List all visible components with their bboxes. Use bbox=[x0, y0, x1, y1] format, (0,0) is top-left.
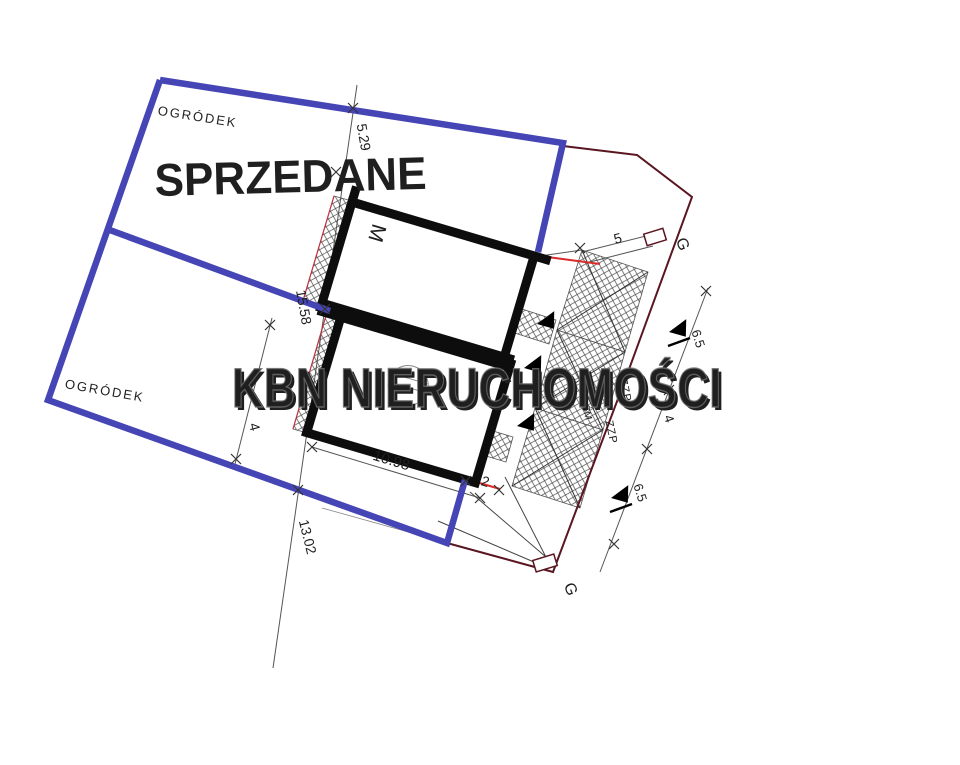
watermark: KBN NIERUCHOMOŚCI KBN NIERUCHOMOŚCI bbox=[232, 356, 725, 422]
site-plan-canvas: M OGRÓDEK SPRZEDANE OGRÓDEK 5.29 15.58 4… bbox=[0, 0, 960, 765]
watermark-text: KBN NIERUCHOMOŚCI bbox=[232, 356, 722, 419]
sold-label: SPRZEDANE bbox=[154, 147, 427, 206]
site-plan-drawing: M OGRÓDEK SPRZEDANE OGRÓDEK 5.29 15.58 4… bbox=[0, 0, 960, 765]
